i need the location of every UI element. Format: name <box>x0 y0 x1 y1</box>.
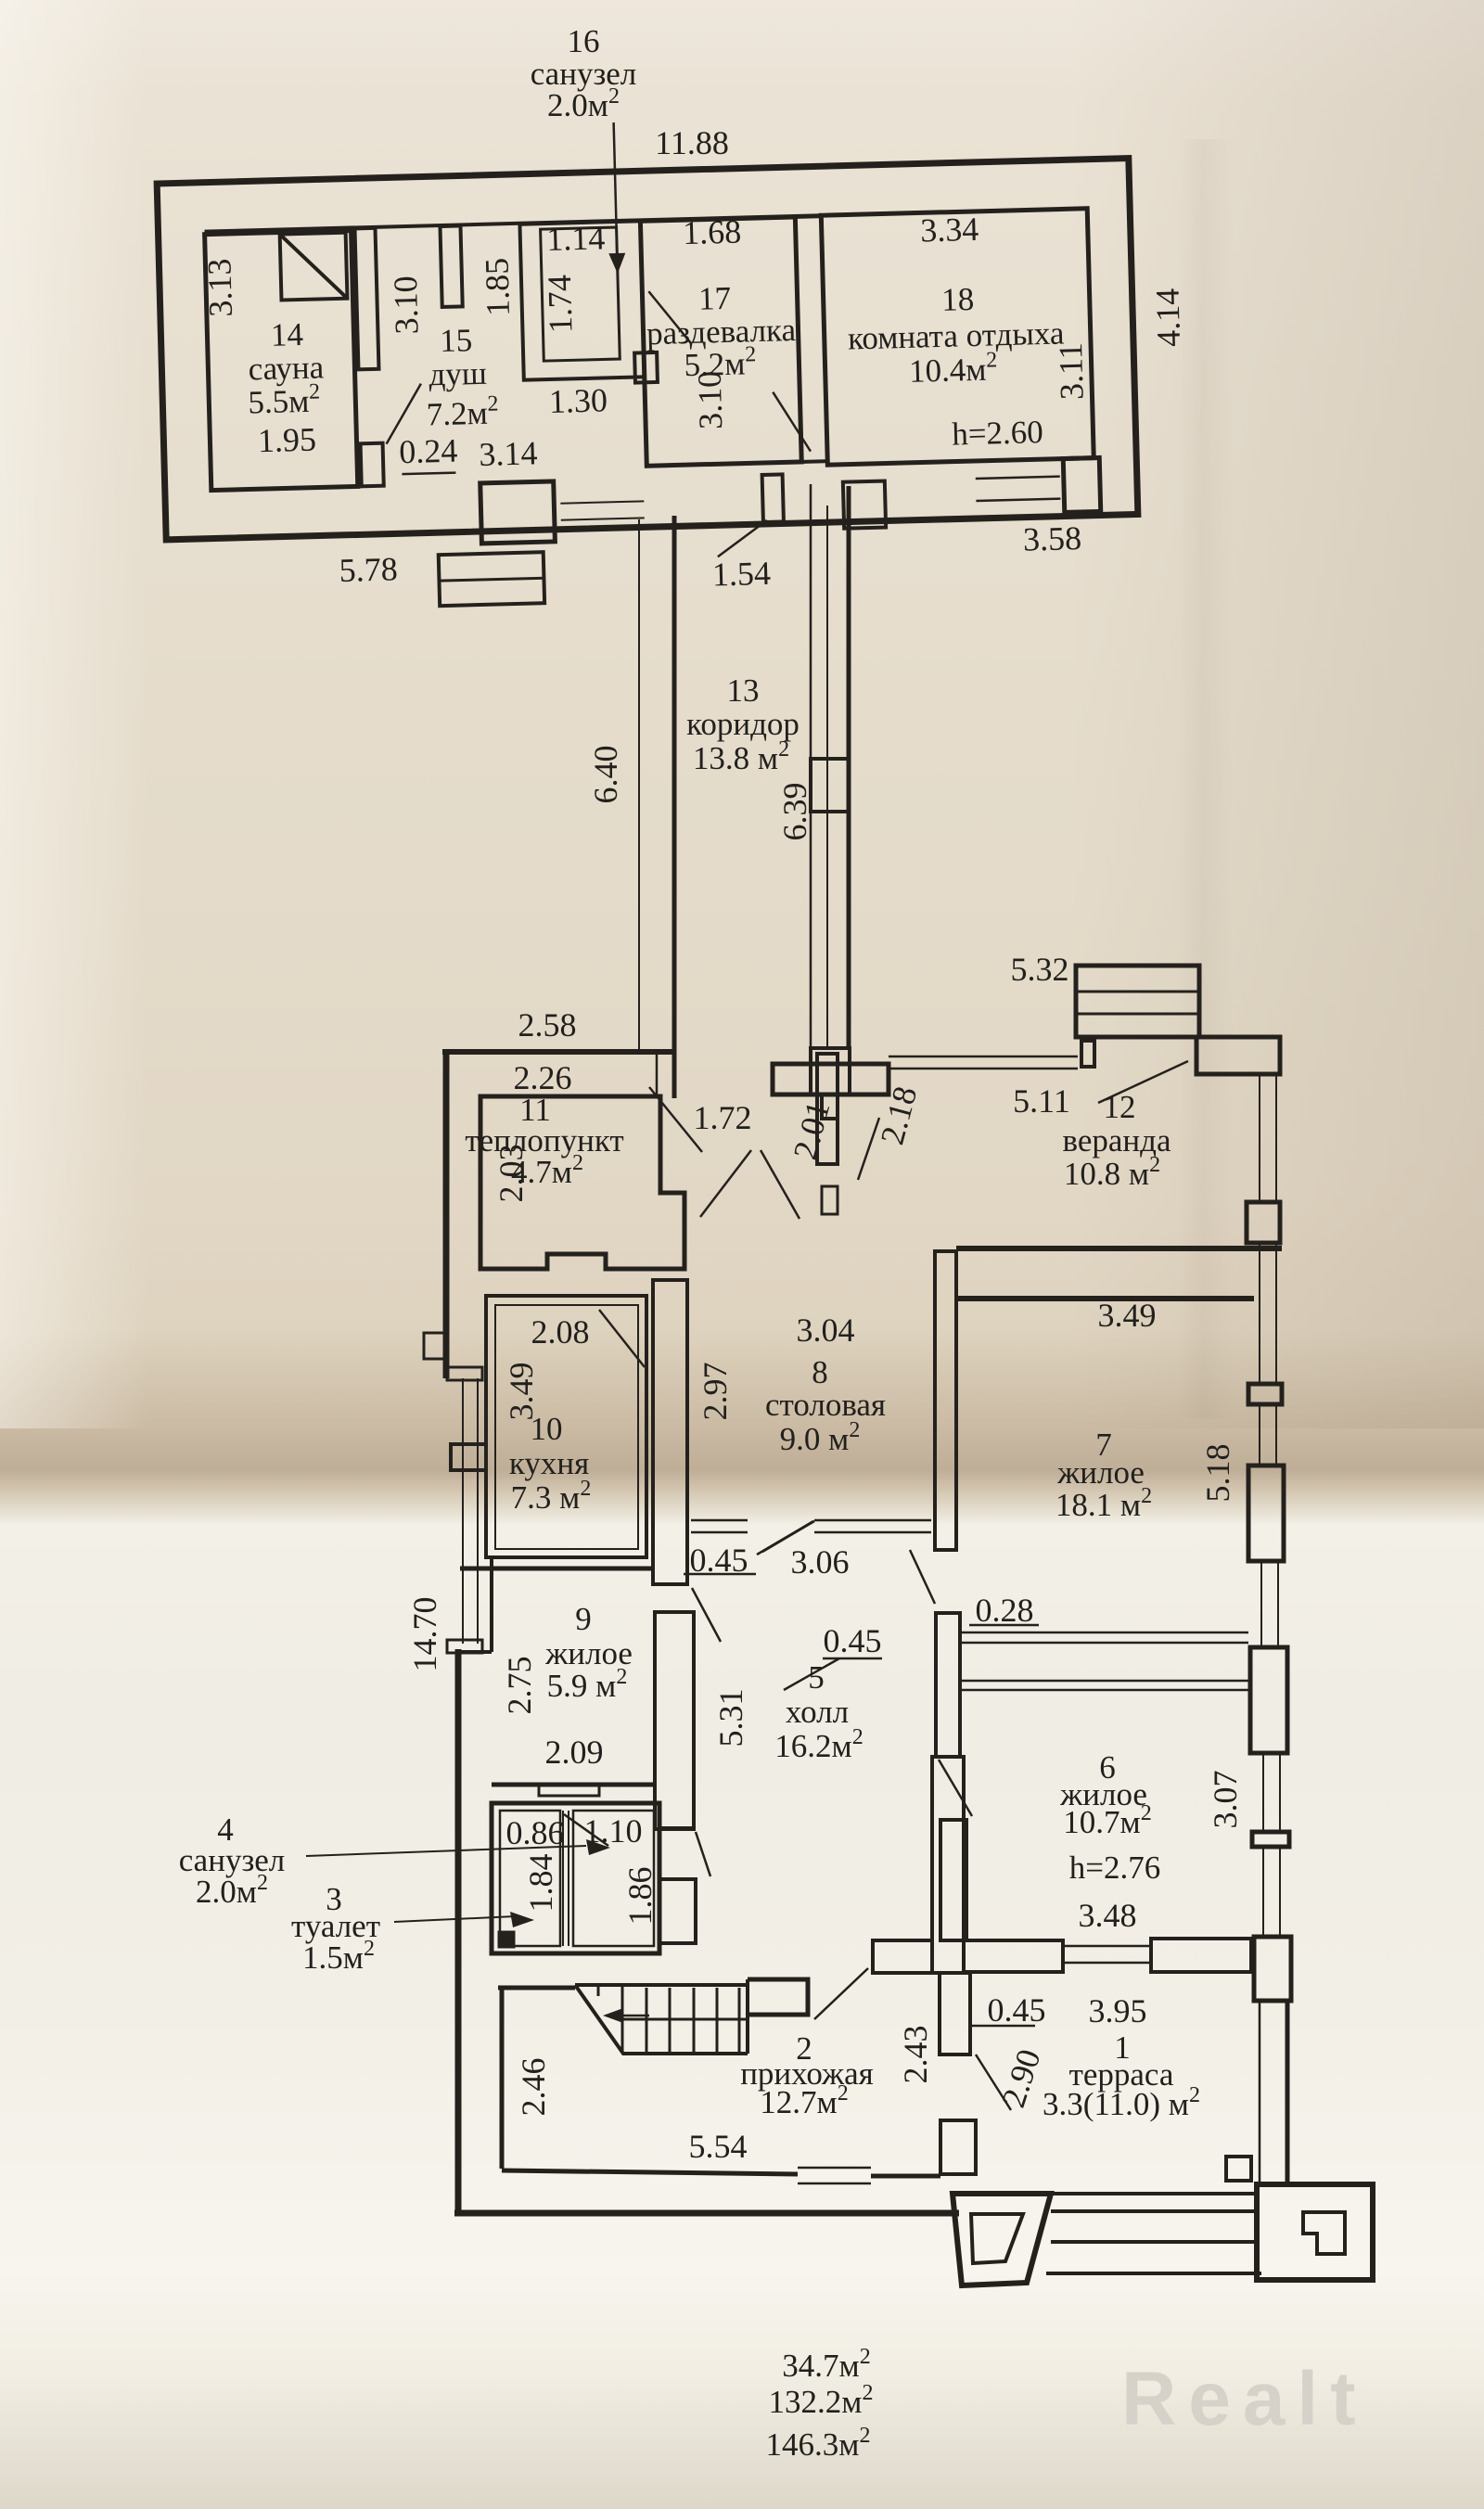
svg-text:1.84: 1.84 <box>522 1854 559 1913</box>
svg-text:0.45: 0.45 <box>690 1542 748 1579</box>
svg-text:17: 17 <box>698 280 732 317</box>
svg-text:3.34: 3.34 <box>920 211 979 250</box>
svg-text:7.2м2: 7.2м2 <box>426 391 499 432</box>
svg-text:3.10: 3.10 <box>387 275 426 335</box>
svg-text:2.58: 2.58 <box>518 1006 577 1043</box>
svg-text:16: 16 <box>568 23 600 59</box>
svg-text:4.14: 4.14 <box>1148 288 1187 347</box>
svg-text:3.13: 3.13 <box>200 258 239 317</box>
svg-text:1.85: 1.85 <box>478 257 517 316</box>
svg-text:2.75: 2.75 <box>501 1657 538 1715</box>
svg-text:1.10: 1.10 <box>584 1812 643 1850</box>
svg-text:1.54: 1.54 <box>711 555 771 594</box>
svg-text:3.3(11.0) м2: 3.3(11.0) м2 <box>1043 2083 1200 2122</box>
svg-text:кухня: кухня <box>509 1445 589 1481</box>
svg-text:2.90: 2.90 <box>994 2044 1048 2111</box>
svg-text:2.09: 2.09 <box>545 1734 604 1771</box>
svg-text:10.4м2: 10.4м2 <box>908 348 997 389</box>
svg-text:1.14: 1.14 <box>546 219 606 258</box>
svg-text:2.03: 2.03 <box>493 1145 530 1203</box>
svg-text:2.26: 2.26 <box>514 1059 572 1096</box>
svg-text:5.78: 5.78 <box>339 550 398 589</box>
svg-text:1.74: 1.74 <box>541 275 580 334</box>
svg-text:9.0 м2: 9.0 м2 <box>780 1418 861 1457</box>
svg-text:2.08: 2.08 <box>531 1313 590 1351</box>
svg-text:0.28: 0.28 <box>976 1592 1034 1629</box>
svg-text:5.32: 5.32 <box>1011 951 1069 988</box>
svg-text:10: 10 <box>531 1411 563 1447</box>
svg-text:комната отдыха: комната отдыха <box>848 314 1066 356</box>
svg-text:душ: душ <box>429 355 487 393</box>
svg-text:5.18: 5.18 <box>1199 1444 1236 1503</box>
svg-text:5: 5 <box>808 1659 825 1696</box>
svg-text:16.2м2: 16.2м2 <box>774 1725 863 1764</box>
svg-text:жилое: жилое <box>1056 1454 1145 1491</box>
svg-text:2.97: 2.97 <box>697 1363 734 1421</box>
svg-text:0.45: 0.45 <box>824 1622 882 1659</box>
svg-text:6.39: 6.39 <box>776 783 813 841</box>
svg-text:3.14: 3.14 <box>479 434 538 473</box>
svg-text:5.9 м2: 5.9 м2 <box>547 1665 628 1704</box>
svg-text:3.06: 3.06 <box>791 1543 850 1581</box>
svg-text:8: 8 <box>812 1354 828 1390</box>
svg-text:1.30: 1.30 <box>548 381 608 420</box>
svg-text:3.49: 3.49 <box>1098 1297 1157 1334</box>
svg-text:34.7м2: 34.7м2 <box>782 2345 870 2384</box>
svg-text:12.7м2: 12.7м2 <box>760 2081 848 2120</box>
svg-text:13: 13 <box>727 672 760 709</box>
svg-text:0.24: 0.24 <box>399 432 458 471</box>
svg-text:1.5м2: 1.5м2 <box>302 1937 375 1976</box>
svg-text:2.46: 2.46 <box>515 2058 552 2117</box>
svg-text:3.07: 3.07 <box>1207 1771 1244 1829</box>
svg-text:2.0м2: 2.0м2 <box>196 1871 268 1910</box>
svg-text:Realt: Realt <box>1121 2357 1368 2441</box>
svg-text:10.8 м2: 10.8 м2 <box>1064 1153 1160 1192</box>
svg-text:2.01: 2.01 <box>786 1097 837 1163</box>
svg-text:столовая: столовая <box>765 1387 886 1423</box>
svg-text:1.86: 1.86 <box>621 1867 659 1926</box>
svg-text:18: 18 <box>941 281 975 318</box>
svg-text:14: 14 <box>270 316 303 353</box>
svg-text:9: 9 <box>575 1601 592 1637</box>
svg-text:холл: холл <box>786 1694 849 1730</box>
svg-text:18.1 м2: 18.1 м2 <box>1055 1484 1152 1523</box>
svg-text:1.95: 1.95 <box>257 421 316 460</box>
svg-text:3.58: 3.58 <box>1022 519 1081 558</box>
svg-text:6.40: 6.40 <box>587 746 624 804</box>
svg-text:0.45: 0.45 <box>988 1991 1046 2029</box>
svg-text:15: 15 <box>440 322 473 359</box>
svg-text:11.88: 11.88 <box>655 124 729 161</box>
svg-text:h=2.76: h=2.76 <box>1069 1850 1161 1886</box>
svg-text:5.31: 5.31 <box>712 1689 749 1747</box>
svg-text:3.11: 3.11 <box>1052 342 1091 401</box>
svg-text:12: 12 <box>1104 1089 1136 1125</box>
svg-text:3.95: 3.95 <box>1089 1992 1147 2029</box>
svg-text:14.70: 14.70 <box>406 1597 443 1672</box>
svg-text:10.7м2: 10.7м2 <box>1063 1801 1151 1840</box>
svg-text:1.68: 1.68 <box>683 213 742 252</box>
svg-text:146.3м2: 146.3м2 <box>766 2424 871 2463</box>
svg-text:5.11: 5.11 <box>1013 1082 1070 1120</box>
svg-text:2.43: 2.43 <box>897 2026 934 2084</box>
svg-text:h=2.60: h=2.60 <box>952 414 1043 453</box>
svg-text:3.48: 3.48 <box>1079 1897 1137 1934</box>
svg-text:0.86: 0.86 <box>506 1814 565 1851</box>
svg-text:2.0м2: 2.0м2 <box>547 84 620 123</box>
svg-text:5.54: 5.54 <box>689 2128 748 2165</box>
svg-text:5.5м2: 5.5м2 <box>248 379 321 420</box>
svg-text:1.72: 1.72 <box>694 1099 752 1136</box>
svg-text:3.04: 3.04 <box>797 1312 855 1349</box>
svg-text:132.2м2: 132.2м2 <box>769 2381 874 2420</box>
svg-text:7.3 м2: 7.3 м2 <box>511 1477 592 1516</box>
svg-text:3.10: 3.10 <box>691 370 730 429</box>
svg-text:13.8 м2: 13.8 м2 <box>693 737 789 776</box>
